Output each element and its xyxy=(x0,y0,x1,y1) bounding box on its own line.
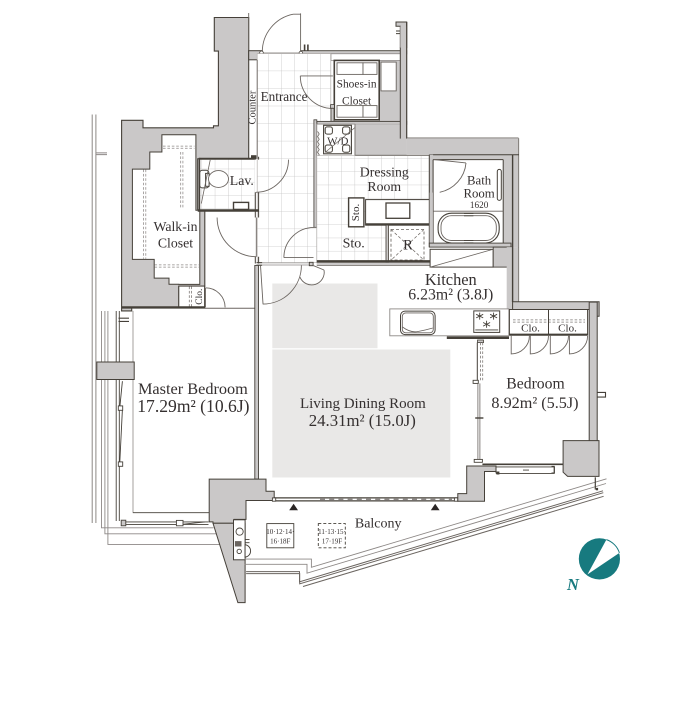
svg-text:Shoes-in: Shoes-in xyxy=(337,79,377,91)
svg-text:Room: Room xyxy=(463,186,494,200)
svg-text:1620: 1620 xyxy=(470,200,489,210)
svg-text:Living Dining Room: Living Dining Room xyxy=(300,396,426,412)
svg-text:Lav.: Lav. xyxy=(230,173,254,188)
svg-text:Walk-in: Walk-in xyxy=(153,219,197,234)
svg-text:Sto.: Sto. xyxy=(343,237,365,252)
svg-text:17.29m² (10.6J): 17.29m² (10.6J) xyxy=(137,396,249,416)
svg-text:Room: Room xyxy=(367,179,401,194)
svg-text:W/D: W/D xyxy=(327,135,348,147)
svg-text:Clo.: Clo. xyxy=(195,289,205,305)
svg-text:17·19F: 17·19F xyxy=(322,538,342,546)
svg-text:R: R xyxy=(403,237,413,253)
svg-text:Counter: Counter xyxy=(247,90,258,124)
svg-text:6.23m² (3.8J): 6.23m² (3.8J) xyxy=(408,286,493,303)
svg-text:16·18F: 16·18F xyxy=(270,538,290,546)
svg-text:24.31m² (15.0J): 24.31m² (15.0J) xyxy=(309,411,416,430)
svg-text:Bedroom: Bedroom xyxy=(506,376,564,393)
svg-text:Sto.: Sto. xyxy=(350,204,362,222)
svg-text:10·12·14·: 10·12·14· xyxy=(266,528,294,536)
svg-text:Closet: Closet xyxy=(342,95,372,107)
svg-text:8.92m² (5.5J): 8.92m² (5.5J) xyxy=(491,394,578,412)
svg-text:N: N xyxy=(566,575,580,594)
svg-text:Clo.: Clo. xyxy=(521,322,540,334)
svg-text:Closet: Closet xyxy=(158,236,193,251)
svg-text:Clo.: Clo. xyxy=(558,322,577,334)
svg-text:Entrance: Entrance xyxy=(261,89,308,104)
svg-text:Dressing: Dressing xyxy=(360,165,409,180)
svg-text:Balcony: Balcony xyxy=(355,517,402,532)
svg-text:11·13·15·: 11·13·15· xyxy=(318,528,346,536)
